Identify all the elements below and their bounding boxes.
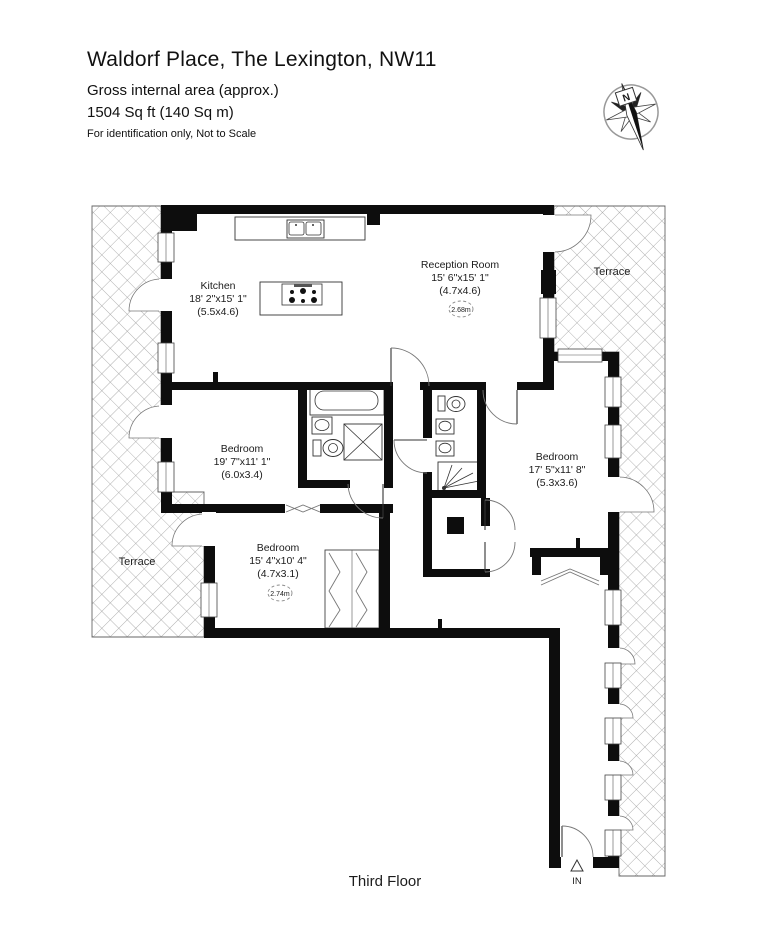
svg-text:Bedroom: Bedroom [257,542,300,554]
entry-label: IN [572,876,582,887]
basin-icon [436,441,454,456]
window [558,349,602,362]
terrace-right-label: Terrace [594,266,631,278]
window [158,462,174,492]
room-label-kitchen: Kitchen 18' 2"x15' 1" (5.5x4.6) [189,280,247,318]
svg-text:Bedroom: Bedroom [536,451,579,463]
basin-icon [436,419,454,434]
svg-text:Kitchen: Kitchen [200,280,235,292]
svg-text:19' 7"x11' 1": 19' 7"x11' 1" [214,456,271,468]
window [201,583,217,617]
toilet-icon [313,440,343,457]
bedroom-right-closet [541,569,599,585]
svg-text:(4.7x3.1): (4.7x3.1) [257,568,298,580]
compass-icon: N [596,75,669,158]
svg-text:(5.3x3.6): (5.3x3.6) [536,477,577,489]
kitchen-island [260,282,342,315]
window [605,775,621,800]
ceiling-height: 2.74m [270,591,290,598]
window [158,343,174,373]
room-label-reception: Reception Room 15' 6"x15' 1" (4.7x4.6) 2… [421,259,499,317]
svg-text:17' 5"x11' 8": 17' 5"x11' 8" [529,464,586,476]
svg-text:15' 4"x10' 4": 15' 4"x10' 4" [249,555,307,567]
bathtub-icon [310,386,384,415]
floor-plan: Kitchen 18' 2"x15' 1" (5.5x4.6) Receptio… [0,0,762,942]
floor-label: Third Floor [349,873,422,890]
bedroom-bottom-wardrobes [325,550,379,628]
ceiling-height: 2.68m [451,307,471,314]
room-label-bedroom-bottom: Bedroom 15' 4"x10' 4" (4.7x3.1) 2.74m [249,542,307,601]
svg-text:Bedroom: Bedroom [221,443,264,455]
terrace-left-label: Terrace [119,556,156,568]
basin-icon [312,417,332,434]
window [605,590,621,625]
window [540,298,556,338]
room-label-bedroom-right: Bedroom 17' 5"x11' 8" (5.3x3.6) [529,451,586,489]
window [605,718,621,744]
kitchen-counter [235,217,365,240]
svg-text:(6.0x3.4): (6.0x3.4) [221,469,262,481]
bathroom-2-fixtures [436,396,484,492]
room-label-bedroom-left: Bedroom 19' 7"x11' 1" (6.0x3.4) [214,443,271,481]
window [605,830,621,856]
window [605,663,621,688]
bathroom-1-fixtures [310,386,384,460]
window [158,233,174,262]
svg-text:(4.7x4.6): (4.7x4.6) [439,285,480,297]
window [605,425,621,458]
hall-cupboard [447,517,464,534]
shower-icon [344,424,382,460]
floorplan-page: Waldorf Place, The Lexington, NW11 Gross… [0,0,762,942]
svg-text:18' 2"x15' 1": 18' 2"x15' 1" [189,293,247,305]
svg-text:15' 6"x15' 1": 15' 6"x15' 1" [431,272,489,284]
svg-text:Reception Room: Reception Room [421,259,499,271]
window [605,377,621,407]
svg-text:(5.5x4.6): (5.5x4.6) [197,306,238,318]
toilet-icon [438,396,465,412]
